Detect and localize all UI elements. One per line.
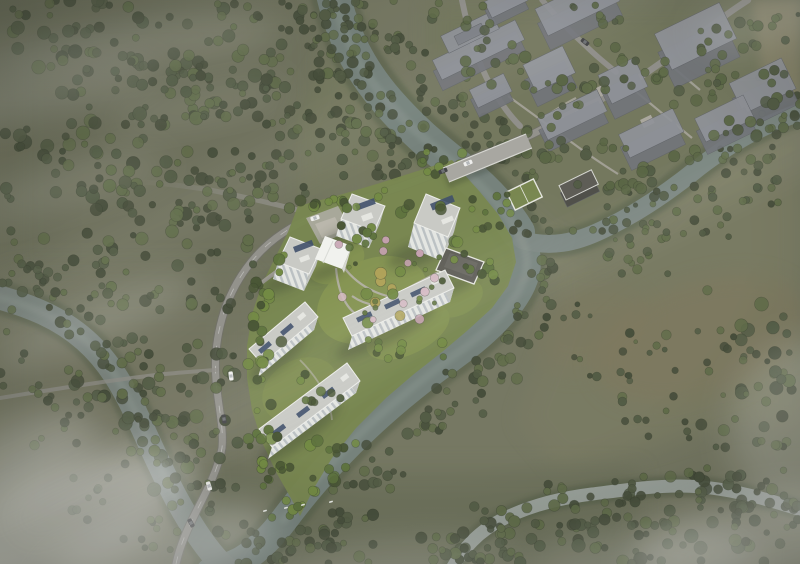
aerial-rendering (0, 0, 800, 564)
color-cast (0, 0, 800, 564)
